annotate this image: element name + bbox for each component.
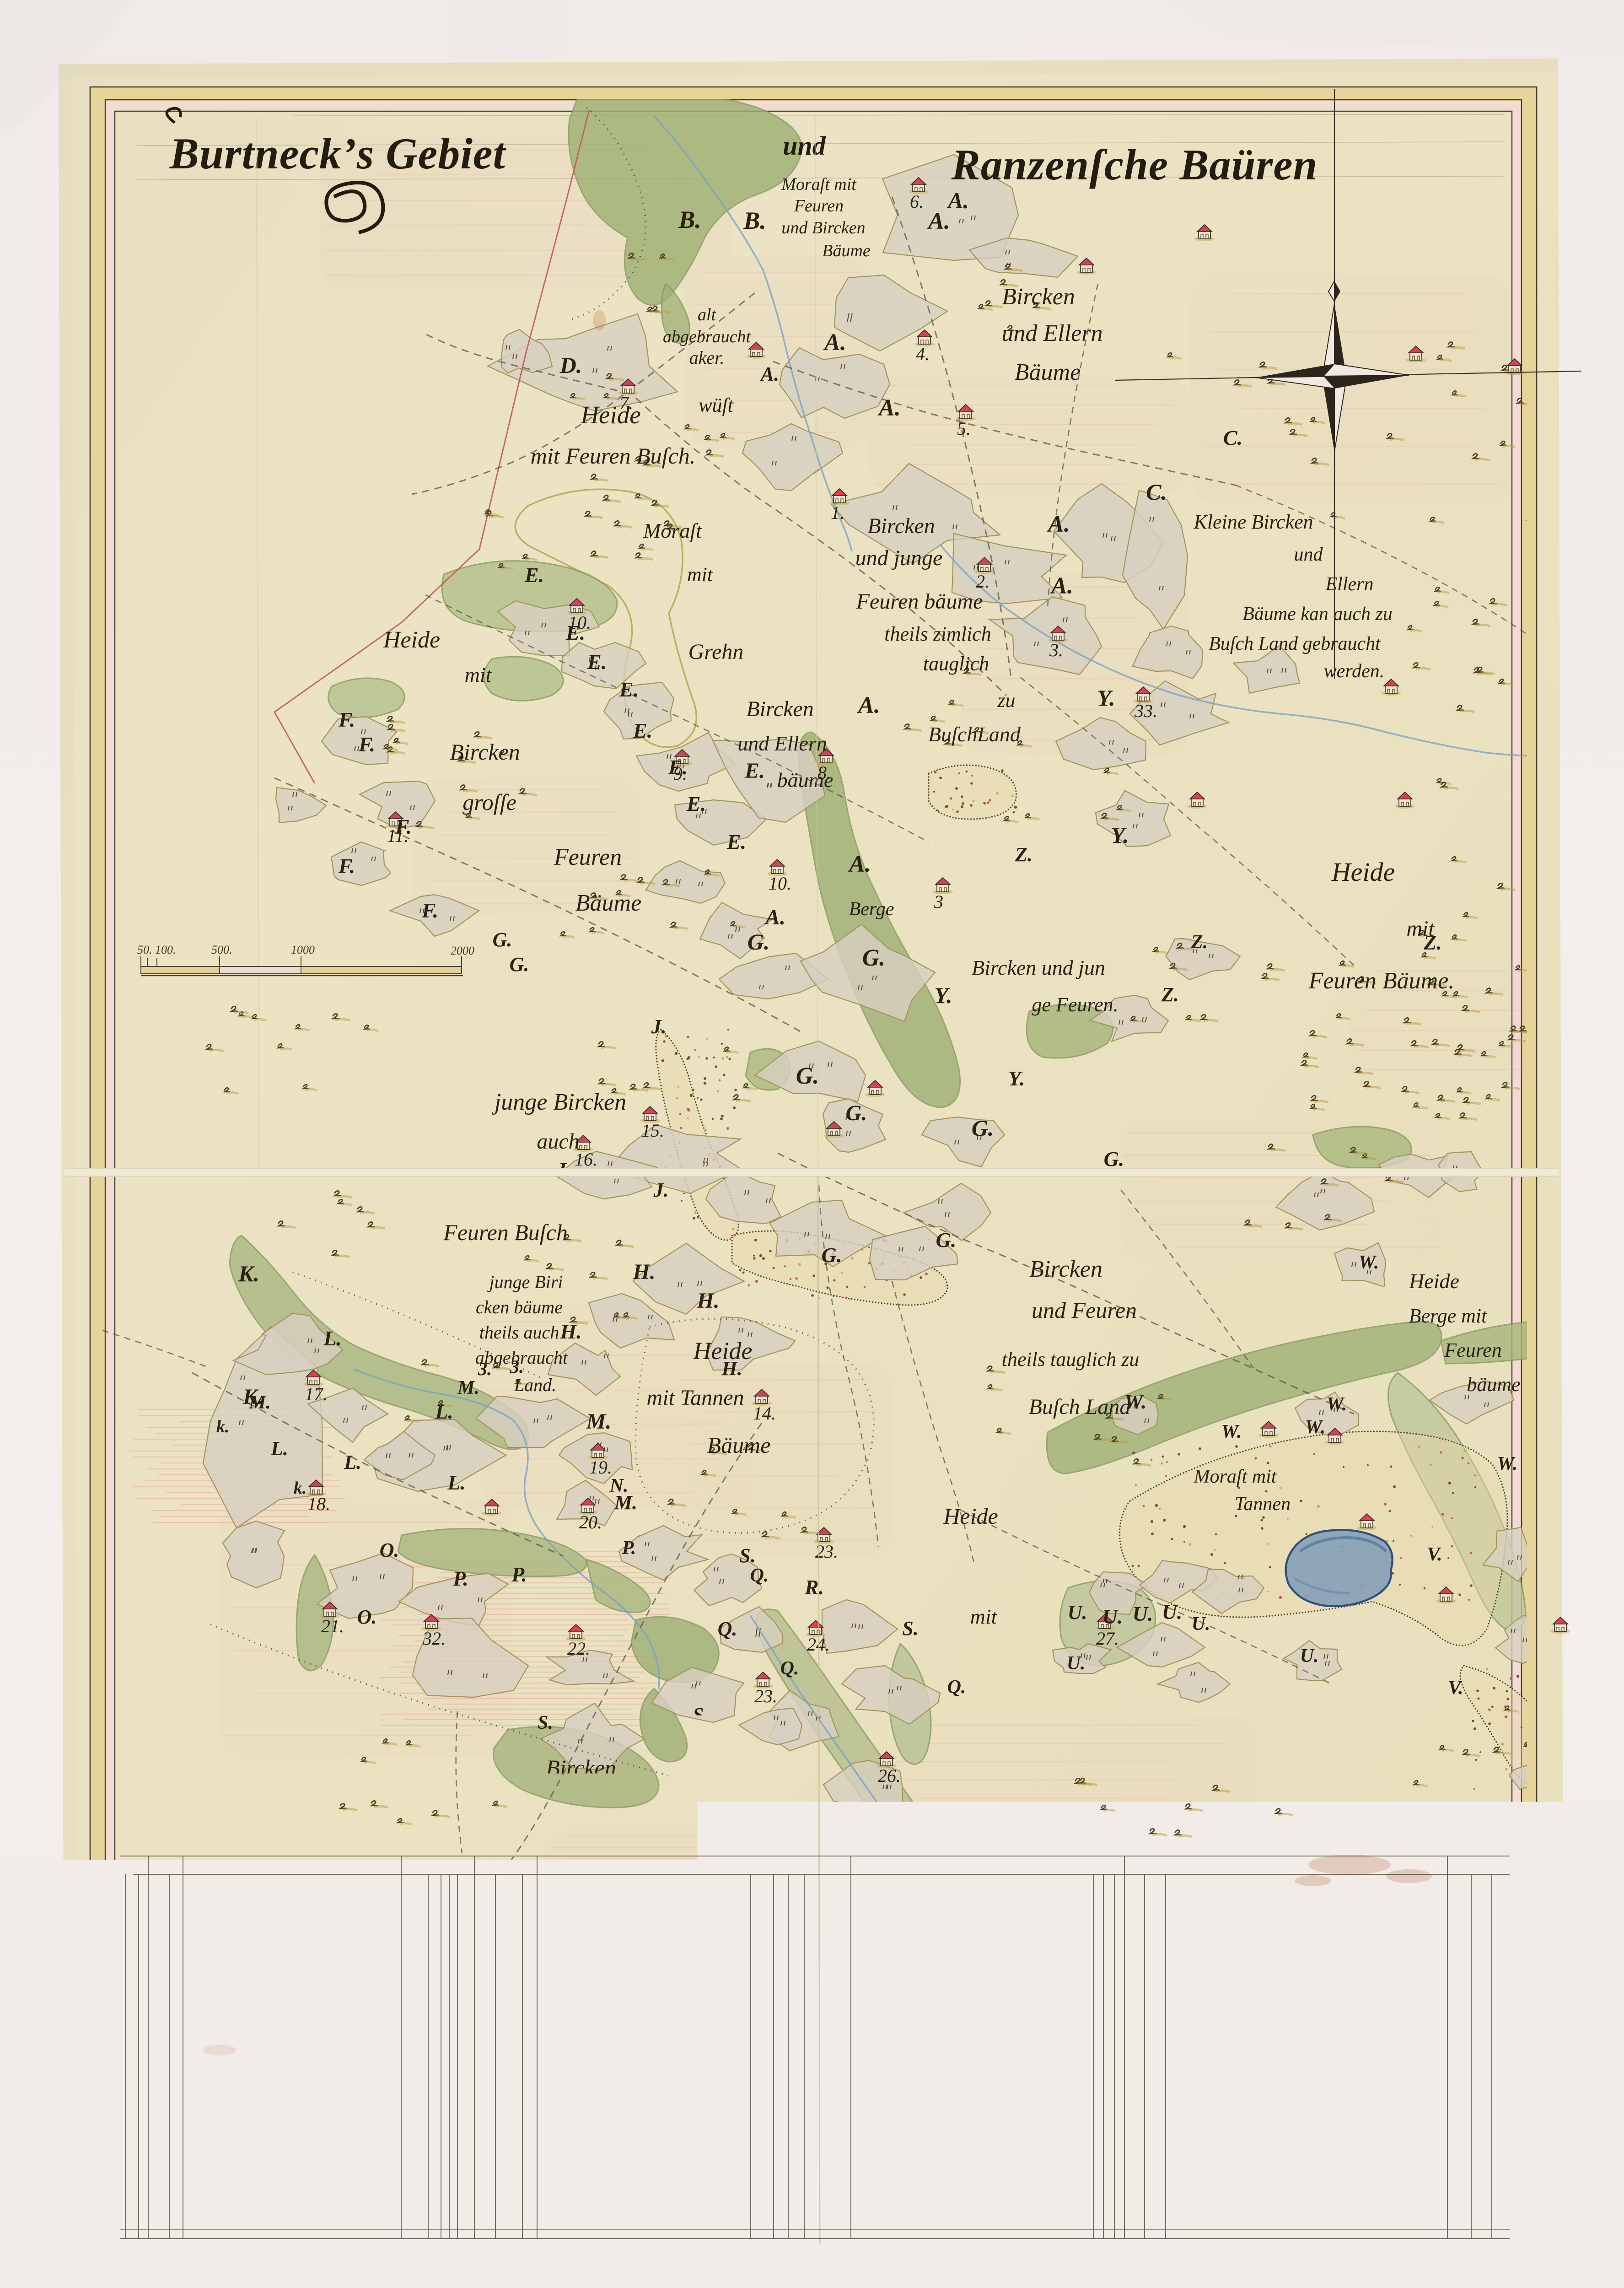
svg-text:Burtneckʼs Gebiet: Burtneckʼs Gebiet — [169, 129, 507, 178]
svg-text:Feuren bäume: Feuren bäume — [856, 589, 983, 614]
svg-text:V.: V. — [1448, 1678, 1463, 1699]
svg-text:T.: T. — [994, 1861, 1010, 1883]
svg-text:Bäume: Bäume — [1015, 359, 1081, 385]
svg-text:Heide: Heide — [1409, 1269, 1459, 1293]
svg-text:Q.: Q. — [750, 1565, 769, 1586]
svg-text:W.: W. — [1497, 1453, 1518, 1474]
svg-text:G.: G. — [972, 1115, 994, 1141]
svg-text:S.: S. — [789, 1754, 805, 1775]
svg-text:Feuren Bäume.: Feuren Bäume. — [1308, 968, 1455, 994]
svg-text:Land.: Land. — [514, 1375, 556, 1395]
svg-text:S.: S. — [739, 1544, 755, 1567]
svg-text:R.: R. — [804, 1576, 824, 1599]
svg-text:E.: E. — [668, 755, 688, 779]
svg-text:Y.: Y. — [934, 982, 952, 1008]
svg-text:L.: L. — [435, 1400, 453, 1423]
svg-text:15.: 15. — [641, 1120, 664, 1141]
svg-text:P.: P. — [622, 1538, 636, 1559]
svg-text:A.: A. — [848, 851, 871, 877]
svg-text:18.: 18. — [307, 1494, 330, 1514]
svg-text:Grehn: Grehn — [688, 640, 744, 664]
svg-text:Feuren: Feuren — [794, 196, 844, 216]
svg-text:und junge: und junge — [855, 546, 943, 570]
svg-text:Berge: Berge — [849, 899, 894, 920]
svg-text:mit Feuren Buſch.: mit Feuren Buſch. — [531, 443, 696, 469]
svg-text:Feuren Buſch: Feuren Buſch — [443, 1220, 568, 1245]
svg-text:S.: S. — [902, 1617, 918, 1640]
svg-text:A.: A. — [927, 208, 950, 234]
svg-text:E.: E. — [565, 621, 585, 644]
svg-text:L.: L. — [344, 1451, 361, 1473]
svg-text:H.: H. — [696, 1289, 719, 1313]
svg-text:Bircken: Bircken — [746, 697, 813, 721]
svg-text:P.: P. — [704, 1725, 719, 1747]
svg-text:23.: 23. — [754, 1686, 777, 1706]
svg-text:mit: mit — [687, 563, 714, 586]
svg-text:Z.: Z. — [1015, 843, 1032, 866]
svg-text:abgebraucht: abgebraucht — [663, 327, 752, 346]
svg-text:P.: P. — [511, 1563, 527, 1586]
svg-text:A.: A. — [764, 905, 785, 929]
svg-text:Kleine Bircken: Kleine Bircken — [1193, 511, 1313, 533]
svg-text:junge Biri: junge Biri — [487, 1272, 563, 1292]
svg-text:A.: A. — [823, 329, 846, 356]
svg-text:bäume: bäume — [777, 768, 834, 792]
svg-text:Bäume: Bäume — [822, 241, 871, 260]
svg-text:17.: 17. — [305, 1384, 328, 1404]
svg-text:C.: C. — [1146, 479, 1167, 505]
svg-text:auch: auch — [537, 1129, 579, 1154]
svg-text:U.: U. — [1102, 1605, 1123, 1628]
svg-text:Bäume kan auch zu: Bäume kan auch zu — [1242, 604, 1393, 625]
svg-text:theils auch: theils auch — [479, 1322, 559, 1343]
svg-text:mit: mit — [970, 1605, 998, 1628]
svg-text:und: und — [783, 131, 826, 161]
svg-text:10.: 10. — [769, 873, 791, 894]
svg-text:cken bäume: cken bäume — [476, 1297, 563, 1317]
svg-text:bäume: bäume — [1467, 1373, 1520, 1396]
svg-text:Bäume: Bäume — [575, 890, 641, 916]
svg-text:A.: A. — [1050, 573, 1073, 599]
svg-text:U.: U. — [1162, 1600, 1183, 1624]
svg-text:B.: B. — [743, 207, 766, 234]
svg-text:O.: O. — [357, 1606, 377, 1628]
svg-text:S.: S. — [693, 1704, 709, 1726]
svg-text:theils tauglich zu: theils tauglich zu — [1002, 1348, 1140, 1371]
svg-text:und: und — [1294, 544, 1323, 565]
svg-text:Z.: Z. — [1423, 931, 1442, 954]
svg-text:19.: 19. — [589, 1457, 612, 1478]
svg-text:BuſchLand: BuſchLand — [928, 723, 1021, 746]
svg-text:50. 100.: 50. 100. — [137, 943, 176, 956]
svg-text:E.: E. — [619, 678, 639, 701]
svg-text:V.: V. — [1427, 1544, 1442, 1565]
svg-text:H.: H. — [721, 1357, 742, 1380]
svg-text:Buſch Land: Buſch Land — [1029, 1395, 1131, 1419]
svg-text:Bircken: Bircken — [450, 739, 520, 765]
svg-text:L.: L. — [323, 1327, 342, 1350]
svg-text:U.: U. — [1067, 1653, 1086, 1674]
svg-text:G.: G. — [796, 1063, 819, 1089]
svg-text:E.: E. — [524, 563, 544, 587]
svg-text:Feuren: Feuren — [1444, 1339, 1501, 1361]
svg-text:G.: G. — [510, 953, 529, 976]
svg-text:A.: A. — [946, 188, 969, 213]
svg-text:theils zimlich: theils zimlich — [884, 623, 991, 645]
svg-text:G.: G. — [747, 929, 770, 955]
svg-text:O.: O. — [380, 1539, 399, 1561]
svg-text:Tannen: Tannen — [1235, 1494, 1291, 1515]
svg-text:Buſch Land gebraucht: Buſch Land gebraucht — [1209, 633, 1381, 654]
svg-text:Bircken und jun: Bircken und jun — [972, 956, 1105, 979]
svg-text:4.: 4. — [916, 344, 930, 364]
svg-text:G.: G. — [846, 1101, 867, 1125]
svg-text:T.: T. — [895, 1711, 911, 1734]
svg-text:U.: U. — [1192, 1613, 1210, 1635]
svg-text:M.: M. — [586, 1409, 612, 1434]
svg-text:mit Tannen: mit Tannen — [647, 1386, 744, 1410]
svg-text:k.: k. — [216, 1417, 230, 1436]
svg-text:14.: 14. — [753, 1403, 776, 1424]
svg-text:A.: A. — [877, 395, 901, 421]
svg-text:H.: H. — [632, 1260, 655, 1284]
svg-text:W.: W. — [1305, 1417, 1326, 1438]
svg-text:21.: 21. — [321, 1616, 344, 1636]
svg-text:B.: B. — [678, 206, 701, 233]
svg-text:P.: P. — [452, 1567, 468, 1590]
svg-text:33.: 33. — [1134, 701, 1157, 721]
svg-text:20.: 20. — [579, 1512, 602, 1533]
svg-text:Bircken: Bircken — [1165, 1754, 1232, 1778]
svg-text:F.: F. — [421, 899, 438, 922]
svg-text:E.: E. — [587, 650, 607, 674]
svg-text:L.: L. — [270, 1437, 288, 1460]
svg-text:Bircken: Bircken — [1002, 284, 1075, 310]
svg-text:Q.: Q. — [718, 1618, 737, 1640]
svg-text:A.: A. — [1047, 511, 1070, 537]
svg-text:Heide: Heide — [1331, 857, 1395, 887]
svg-text:W.: W. — [1359, 1252, 1379, 1273]
svg-text:Y.: Y. — [1111, 822, 1129, 848]
svg-text:E.: E. — [686, 792, 706, 815]
svg-text:wüſt: wüſt — [699, 394, 734, 416]
svg-text:W.: W. — [1327, 1394, 1347, 1415]
svg-text:Moraſt: Moraſt — [643, 519, 702, 542]
svg-text:Z.: Z. — [1191, 932, 1208, 953]
svg-text:k.: k. — [294, 1479, 307, 1498]
svg-text:Heide: Heide — [943, 1503, 998, 1529]
svg-text:Ellern: Ellern — [1325, 574, 1374, 595]
svg-text:M.: M. — [248, 1392, 271, 1413]
svg-text:Y.: Y. — [1097, 685, 1115, 711]
svg-text:G.: G. — [862, 945, 886, 971]
svg-text:und Grehn Bäume.: und Grehn Bäume. — [513, 1796, 672, 1819]
svg-text:3.: 3. — [1049, 640, 1063, 660]
svg-text:G.: G. — [822, 1243, 842, 1267]
svg-text:G.: G. — [936, 1228, 957, 1252]
svg-text:2.: 2. — [976, 571, 989, 592]
svg-text:F.: F. — [395, 815, 412, 838]
svg-text:U.: U. — [1133, 1602, 1153, 1625]
svg-text:Heide: Heide — [383, 627, 440, 653]
svg-text:mit: mit — [465, 663, 492, 686]
svg-text:M.: M. — [457, 1377, 479, 1398]
svg-text:U.: U. — [1300, 1646, 1319, 1667]
svg-text:32.: 32. — [422, 1628, 446, 1649]
svg-text:Feuren: Feuren — [554, 844, 622, 870]
svg-text:F.: F. — [338, 854, 355, 878]
svg-text:Ranzenſche Baüren: Ranzenſche Baüren — [951, 140, 1318, 189]
svg-text:2000: 2000 — [451, 944, 474, 957]
svg-text:J.: J. — [651, 1015, 667, 1038]
svg-text:500.: 500. — [211, 943, 232, 956]
svg-text:C.: C. — [1223, 426, 1242, 449]
svg-text:W.: W. — [1124, 1390, 1147, 1413]
svg-text:K.: K. — [238, 1261, 259, 1286]
svg-text:Y.: Y. — [1008, 1067, 1025, 1090]
svg-text:U.: U. — [1068, 1601, 1087, 1624]
svg-text:werden.: werden. — [1324, 661, 1385, 682]
svg-text:Bircken: Bircken — [867, 514, 935, 538]
svg-text:groſſe: groſſe — [462, 789, 516, 815]
svg-text:W.: W. — [1221, 1421, 1242, 1442]
svg-text:1.: 1. — [831, 502, 844, 523]
svg-text:und Ellern: und Ellern — [1002, 320, 1103, 346]
svg-text:6.: 6. — [910, 191, 924, 212]
svg-text:E.: E. — [633, 719, 652, 742]
svg-text:1000: 1000 — [291, 943, 315, 956]
svg-text:3.: 3. — [478, 1359, 492, 1379]
svg-text:Z.: Z. — [1161, 983, 1179, 1006]
svg-text:und Feuren Bäume: und Feuren Bäume — [1128, 1796, 1288, 1819]
svg-text:Q.: Q. — [780, 1658, 799, 1679]
svg-text:alt: alt — [698, 305, 717, 324]
svg-text:junge Bircken: junge Bircken — [492, 1089, 626, 1115]
svg-text:Bäume: Bäume — [707, 1432, 771, 1458]
svg-text:F.: F. — [358, 733, 375, 756]
svg-text:G.: G. — [493, 928, 512, 951]
svg-text:N.: N. — [609, 1475, 629, 1496]
svg-text:A.: A. — [759, 363, 779, 385]
svg-text:Q.: Q. — [947, 1677, 966, 1698]
svg-text:T.: T. — [877, 1775, 892, 1798]
svg-text:G.: G. — [1104, 1147, 1124, 1171]
svg-text:Berge mit: Berge mit — [1409, 1305, 1488, 1327]
svg-text:D.: D. — [559, 352, 582, 378]
svg-text:S.: S. — [538, 1712, 553, 1733]
svg-text:Bircken: Bircken — [1029, 1256, 1102, 1282]
svg-text:F.: F. — [338, 708, 355, 731]
svg-text:zu: zu — [997, 689, 1015, 712]
svg-text:E.: E. — [744, 759, 765, 783]
svg-text:aker.: aker. — [689, 347, 725, 368]
svg-text:E.: E. — [726, 830, 746, 853]
svg-text:Bircken: Bircken — [546, 1755, 616, 1781]
svg-text:L.: L. — [447, 1471, 466, 1494]
svg-text:3: 3 — [934, 891, 943, 912]
svg-text:und Bircken: und Bircken — [781, 218, 865, 237]
svg-text:Heide: Heide — [580, 401, 640, 429]
svg-text:und Ellern: und Ellern — [737, 732, 827, 755]
svg-text:27.: 27. — [1096, 1628, 1119, 1649]
svg-text:und Feuren: und Feuren — [1032, 1297, 1137, 1323]
svg-text:J.: J. — [653, 1179, 669, 1201]
svg-text:22.: 22. — [567, 1638, 590, 1659]
svg-text:A.: A. — [857, 692, 880, 718]
svg-text:3.: 3. — [510, 1356, 524, 1377]
svg-text:Moraſt mit: Moraſt mit — [781, 175, 857, 194]
svg-text:Moraſt mit: Moraſt mit — [1194, 1466, 1277, 1487]
svg-text:5.: 5. — [957, 418, 971, 439]
svg-text:tauglich: tauglich — [923, 653, 989, 675]
svg-text:ge Feuren.: ge Feuren. — [1032, 993, 1119, 1016]
svg-text:H.: H. — [559, 1320, 581, 1343]
